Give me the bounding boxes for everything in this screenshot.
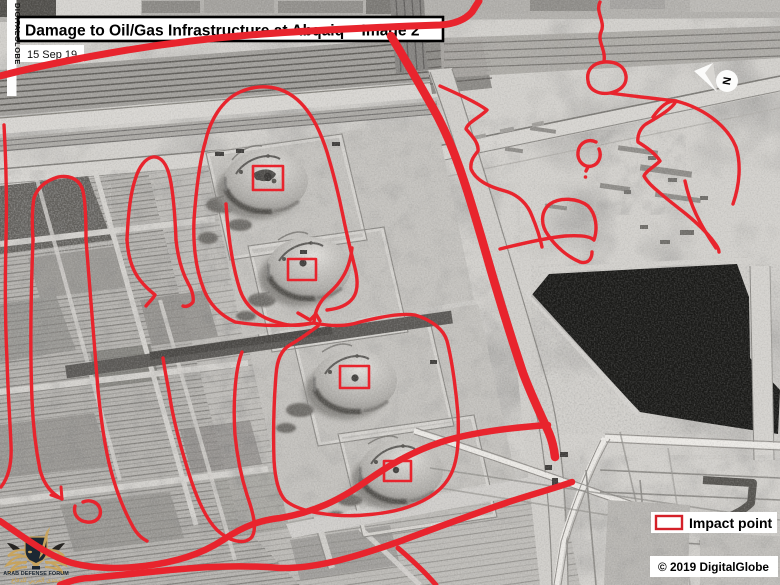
svg-text:DIGITALGLOBE: DIGITALGLOBE xyxy=(13,3,22,65)
svg-text:Impact point: Impact point xyxy=(689,515,773,531)
svg-text:ARAB DEFENSE FORUM: ARAB DEFENSE FORUM xyxy=(3,571,69,577)
svg-text:المنتدى العربي للدفاع: المنتدى العربي للدفاع xyxy=(11,577,65,584)
svg-text:© 2019 DigitalGlobe: © 2019 DigitalGlobe xyxy=(658,560,769,574)
